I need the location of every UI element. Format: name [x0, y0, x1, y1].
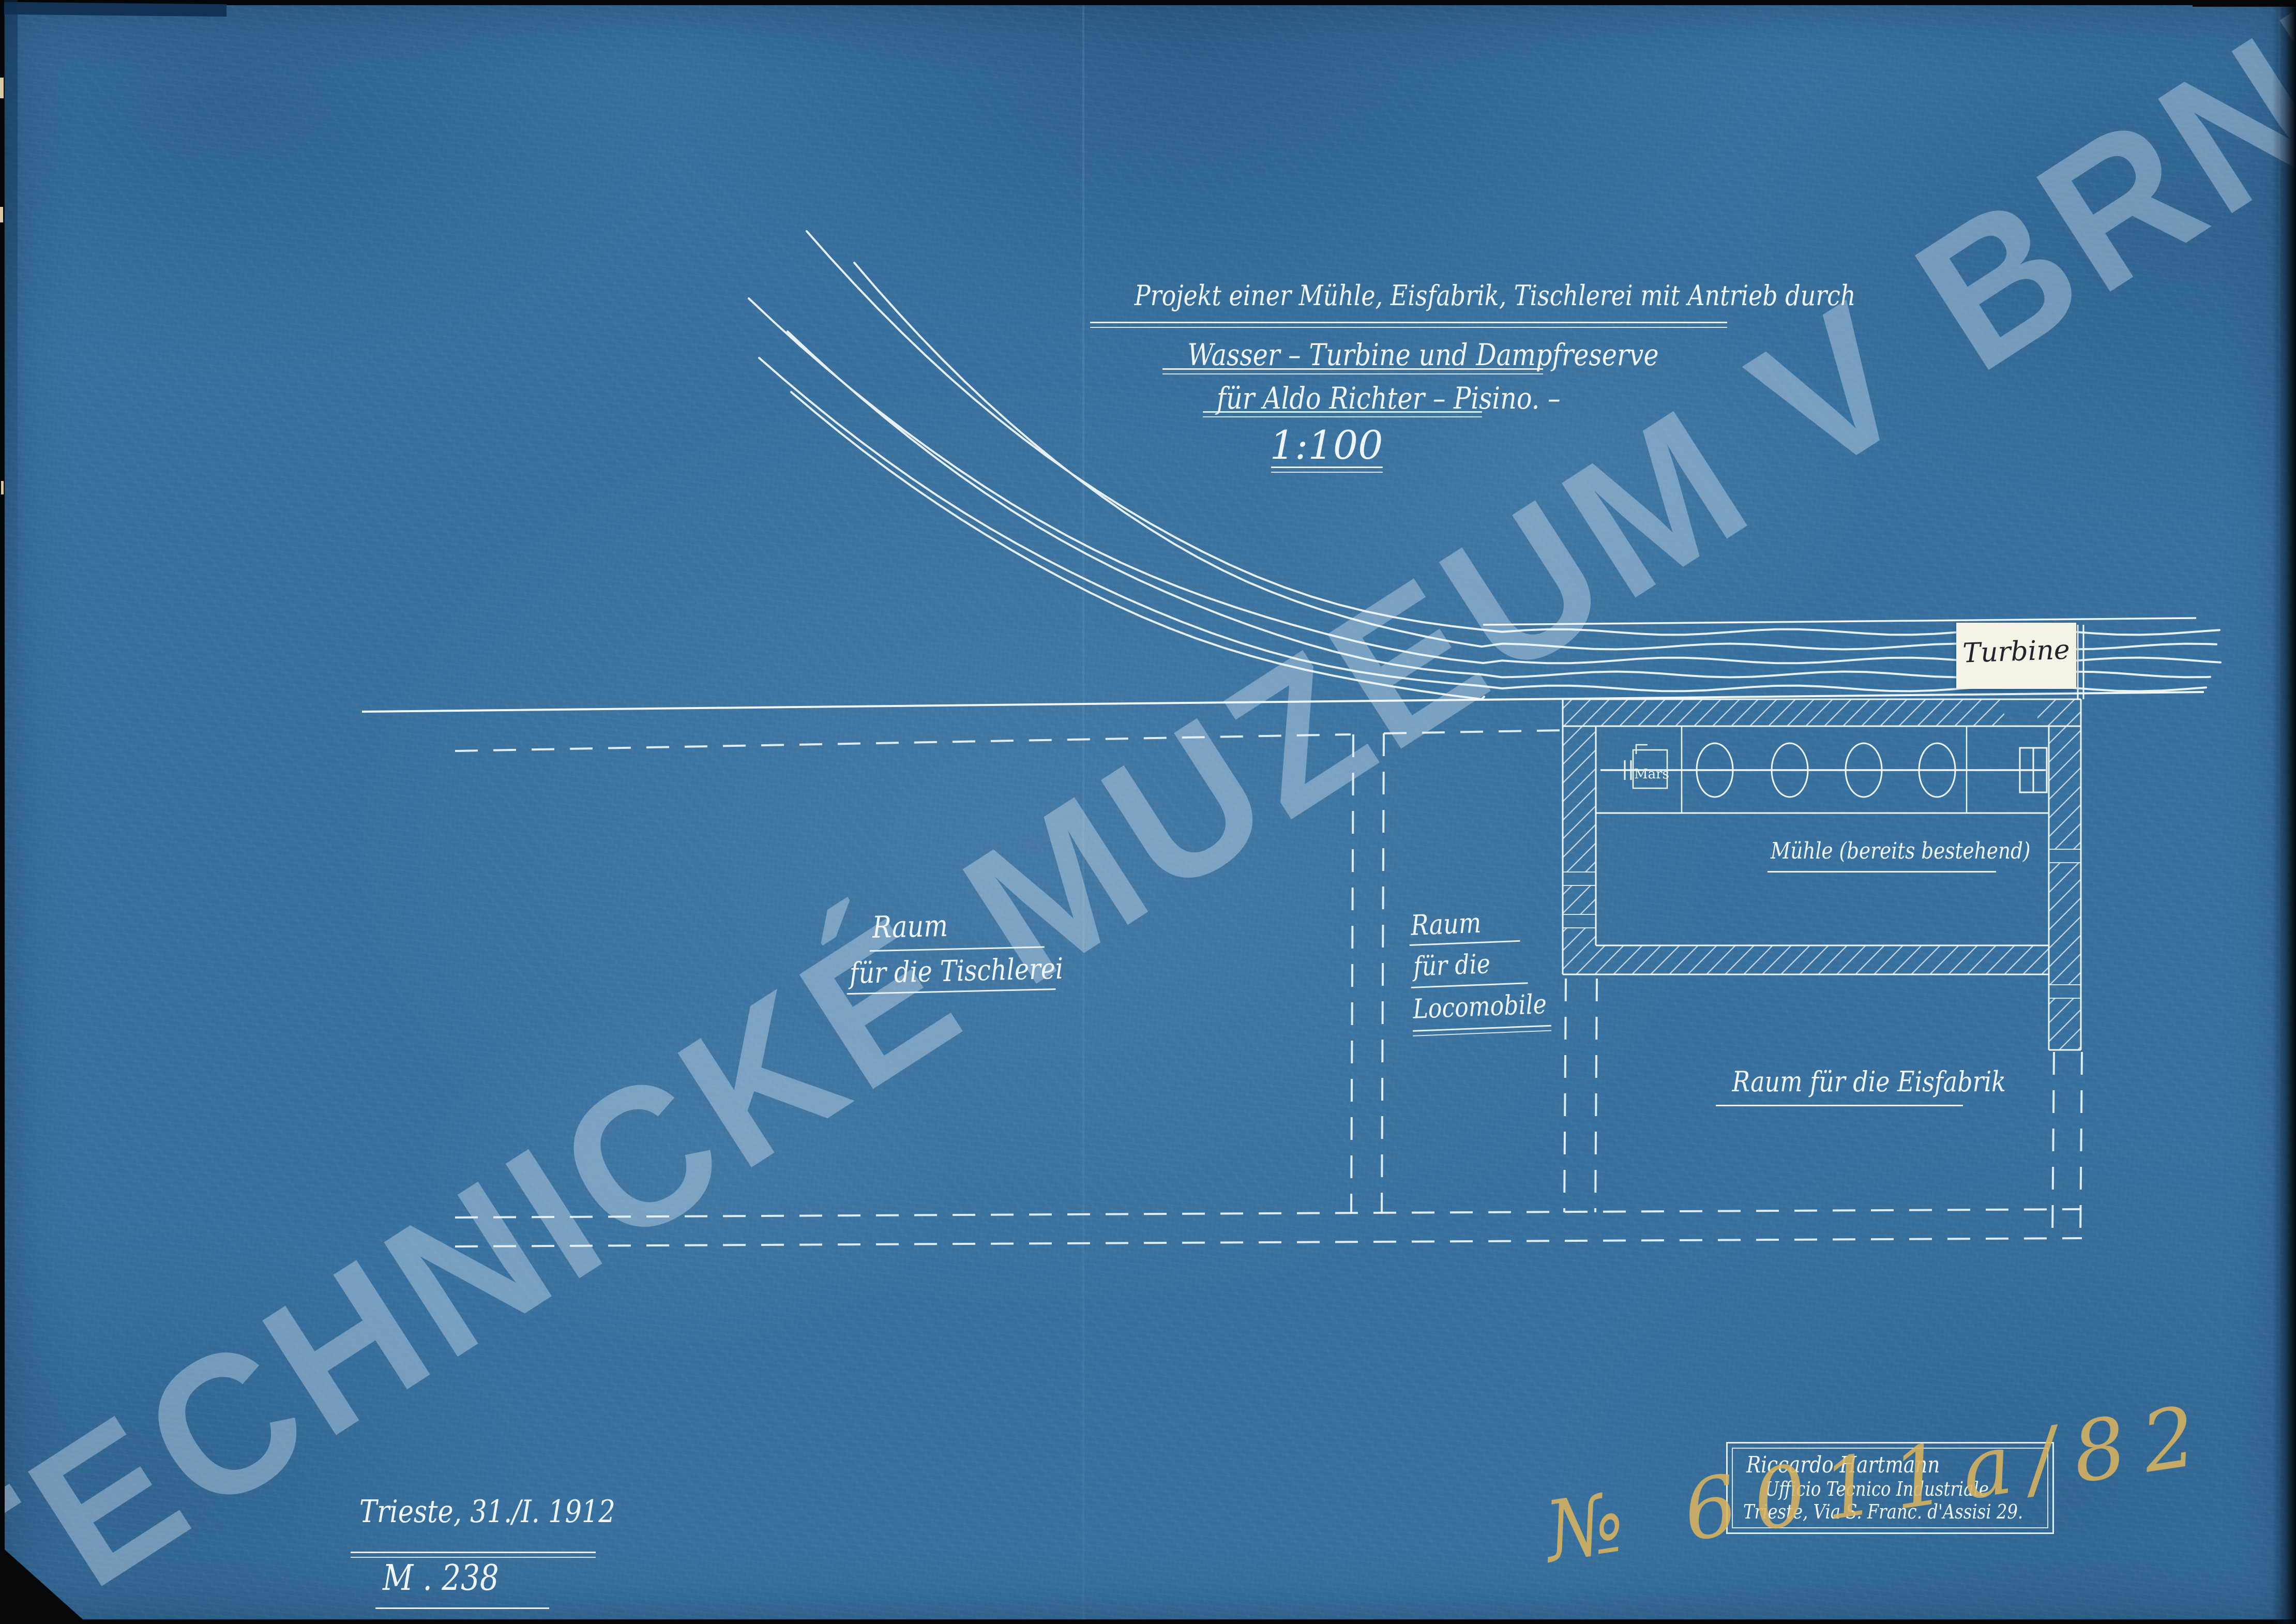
room-label-tischlerei: Raum für die Tischlerei: [842, 905, 1087, 1004]
scan-edge-bottom: [0, 1619, 2296, 1624]
mars-machine-label: Mars: [1634, 766, 1666, 782]
drawing-number: M . 238: [383, 1558, 519, 1599]
title-line-3: für Aldo Richter – Pisino. –: [1195, 381, 1489, 416]
place-date: Trieste, 31./I. 1912: [359, 1494, 660, 1530]
paper-edge-nick: [0, 207, 3, 222]
left-edge-shadow: [4, 0, 18, 698]
scale-underline: [1271, 467, 1383, 473]
title-line-1: Projekt einer Mühle, Eisfabrik, Tischler…: [1086, 279, 1732, 312]
blueprint-sheet: TECHNICKÉ MUZEUM V BRNĚ: [0, 0, 2296, 1624]
plan-linework: [0, 0, 2296, 1624]
drawing-scale: 1:100: [1270, 422, 1383, 468]
scan-edge-right: [2272, 0, 2296, 1624]
number-underline: [375, 1607, 549, 1609]
scan-edge-top: [0, 0, 2296, 5]
mill-label: Mühle (bereits bestehend): [1771, 838, 2008, 864]
room-label-eisfabrik: Raum für die Eisfabrik: [1713, 1065, 1971, 1098]
paper-edge-nick: [1, 481, 4, 494]
eisfabrik-underline: [1716, 1105, 1963, 1106]
title-underline: [1162, 368, 1543, 374]
room-label-locomobile: Raum für die Locomobile: [1408, 903, 1574, 1049]
date-underline: [351, 1552, 596, 1558]
paper-edge-nick: [0, 78, 4, 98]
mill-underline: [1768, 871, 1996, 873]
torn-corner-top-left: [4, 2, 226, 17]
title-underline: [1203, 411, 1482, 417]
turbine-label-text: Turbine: [1956, 634, 2077, 669]
planned-rooms-dashed-outline: [455, 730, 2082, 1246]
river-flow-line: [854, 263, 2216, 650]
turbine-paper-label: Turbine: [1956, 623, 2076, 689]
torn-edge-top-right: [2193, 0, 2296, 7]
title-underline: [1090, 322, 1727, 328]
title-line-2: Wasser – Turbine und Dampfreserve: [1158, 337, 1546, 372]
